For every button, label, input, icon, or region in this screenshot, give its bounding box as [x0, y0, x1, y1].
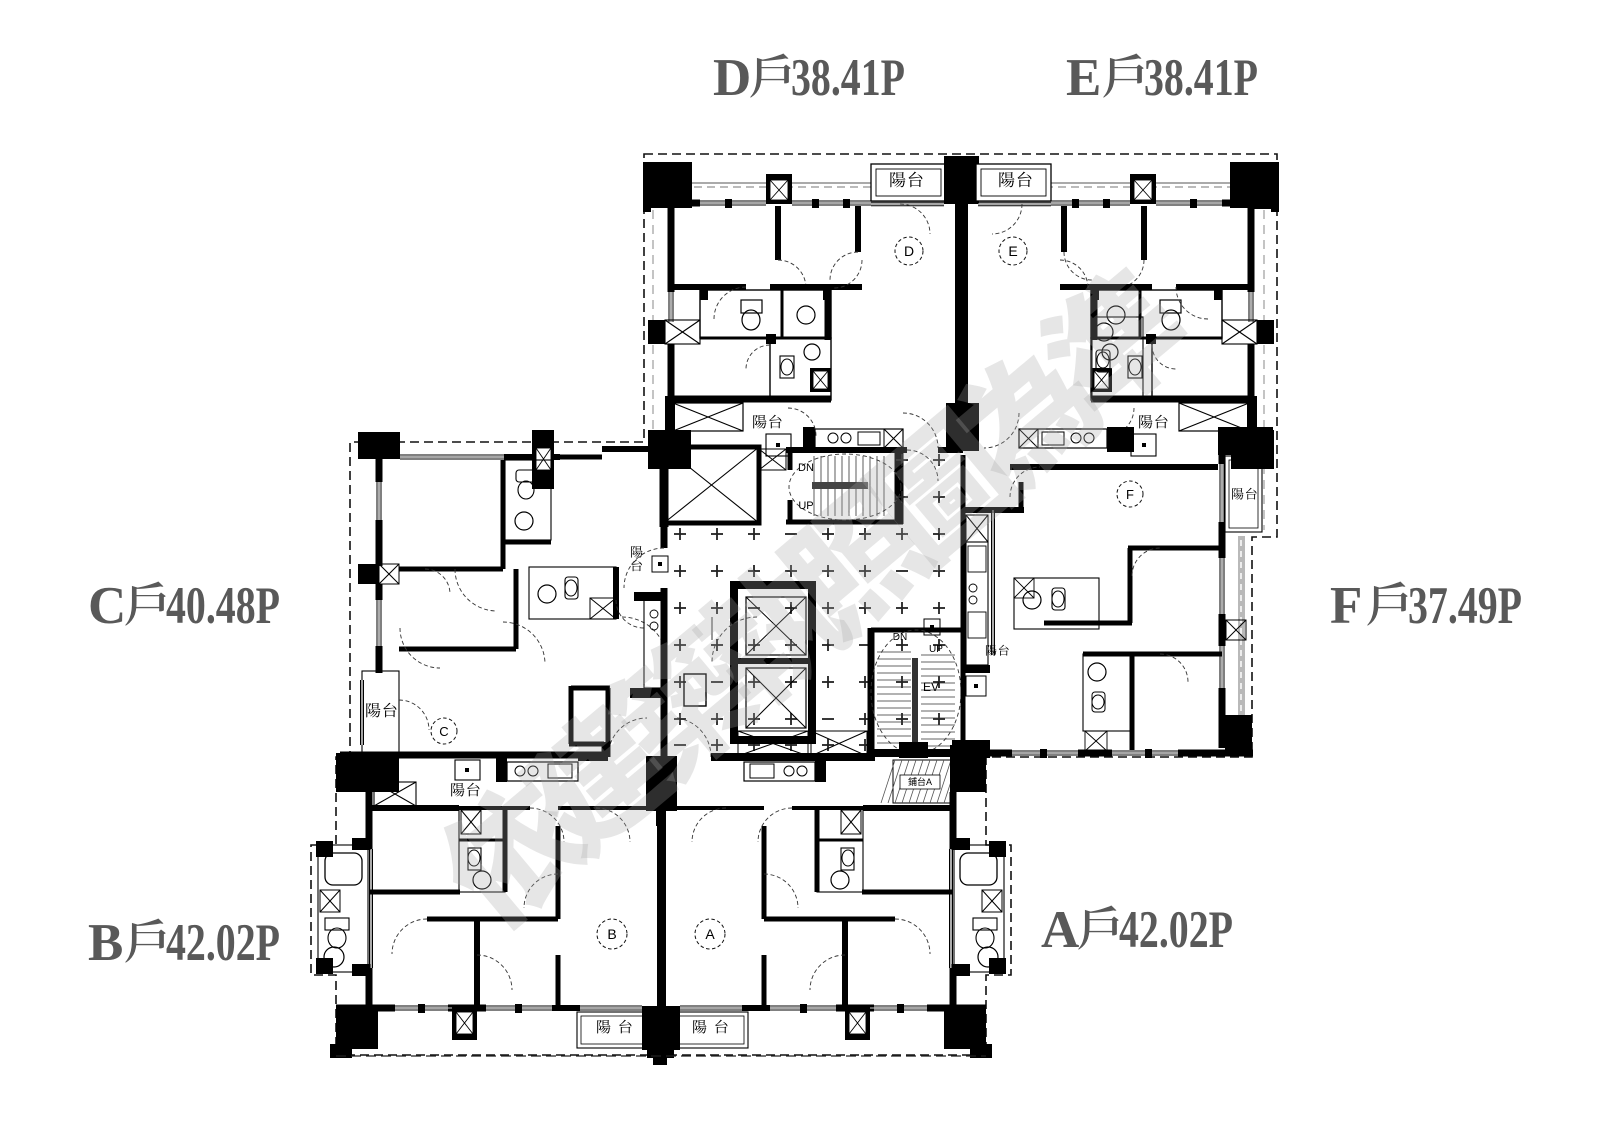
svg-text:E: E — [1008, 243, 1017, 259]
svg-text:DN: DN — [893, 632, 907, 643]
svg-text:38.41P: 38.41P — [791, 49, 905, 107]
svg-text:E: E — [1066, 49, 1101, 107]
svg-text:B: B — [88, 914, 123, 972]
svg-text:37.49P: 37.49P — [1408, 577, 1522, 635]
svg-text:42.02P: 42.02P — [166, 914, 280, 972]
svg-text:D: D — [904, 243, 914, 259]
svg-text:鋪台A: 鋪台A — [908, 776, 932, 787]
svg-text:F: F — [1330, 577, 1362, 635]
svg-text:F: F — [1126, 487, 1134, 502]
svg-text:B: B — [607, 926, 616, 942]
svg-text:UP: UP — [798, 500, 813, 512]
svg-text:40.48P: 40.48P — [166, 577, 280, 635]
svg-text:42.02P: 42.02P — [1119, 901, 1233, 959]
svg-text:C: C — [439, 724, 448, 739]
svg-text:38.41P: 38.41P — [1144, 49, 1258, 107]
svg-text:A: A — [705, 926, 715, 942]
svg-text:D: D — [713, 49, 751, 107]
svg-text:UP: UP — [929, 644, 943, 655]
svg-text:DN: DN — [798, 462, 814, 474]
svg-text:A: A — [1041, 901, 1079, 959]
svg-text:C: C — [88, 577, 126, 635]
svg-text:EV: EV — [923, 680, 939, 694]
